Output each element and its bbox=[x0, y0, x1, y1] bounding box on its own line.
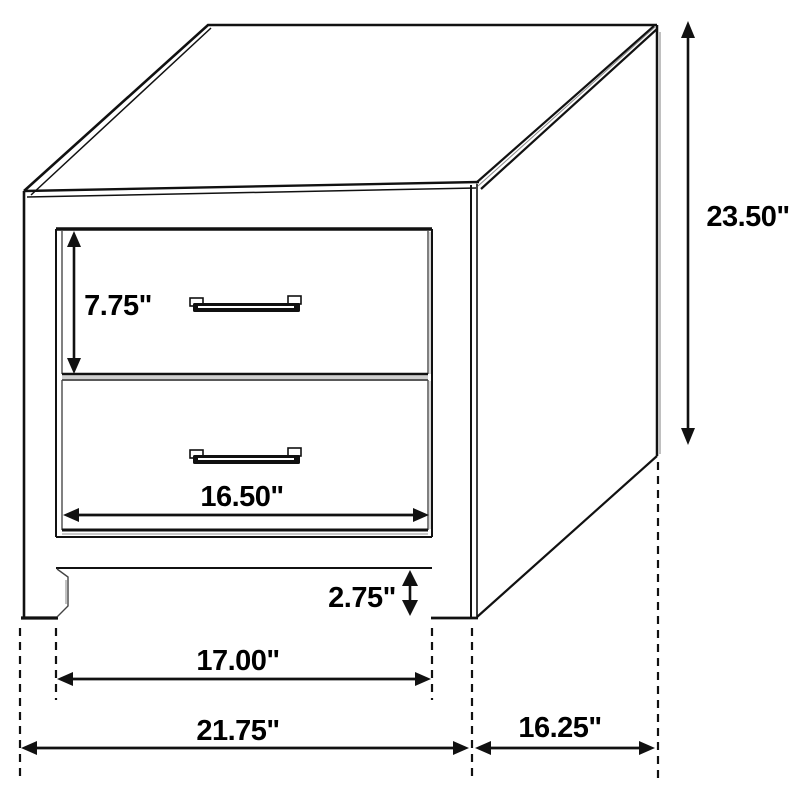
arrow-right-icon bbox=[453, 741, 469, 755]
arrow-left-icon bbox=[21, 741, 37, 755]
arrow-left-icon bbox=[57, 672, 73, 686]
arrow-up-icon bbox=[681, 21, 695, 38]
dimension-overall-width: 21.75" bbox=[21, 715, 469, 755]
dim-label-overall-width: 21.75" bbox=[196, 715, 279, 747]
arrow-down-icon bbox=[681, 428, 695, 445]
front-face bbox=[24, 185, 471, 618]
arrow-left-icon bbox=[475, 741, 491, 755]
dimension-leg-spacing: 17.00" bbox=[57, 645, 431, 686]
dim-label-leg-spacing: 17.00" bbox=[196, 645, 279, 677]
arrow-right-icon bbox=[639, 741, 655, 755]
dim-label-drawer-height: 7.75" bbox=[84, 290, 152, 322]
dim-label-overall-depth: 16.25" bbox=[518, 712, 601, 744]
dimension-overall-height: 23.50" bbox=[681, 21, 790, 445]
dim-label-base-height: 2.75" bbox=[328, 582, 396, 614]
dim-label-drawer-width: 16.50" bbox=[200, 481, 283, 513]
dim-label-overall-height: 23.50" bbox=[706, 201, 789, 233]
furniture-dimension-diagram: 7.75" 16.50" 23.50" 2.75" 17.00" 21.75" bbox=[0, 0, 800, 800]
dimension-overall-depth: 16.25" bbox=[475, 712, 655, 755]
arrow-right-icon bbox=[415, 672, 431, 686]
nightstand-drawing: 7.75" 16.50" 23.50" 2.75" 17.00" 21.75" bbox=[0, 0, 800, 800]
